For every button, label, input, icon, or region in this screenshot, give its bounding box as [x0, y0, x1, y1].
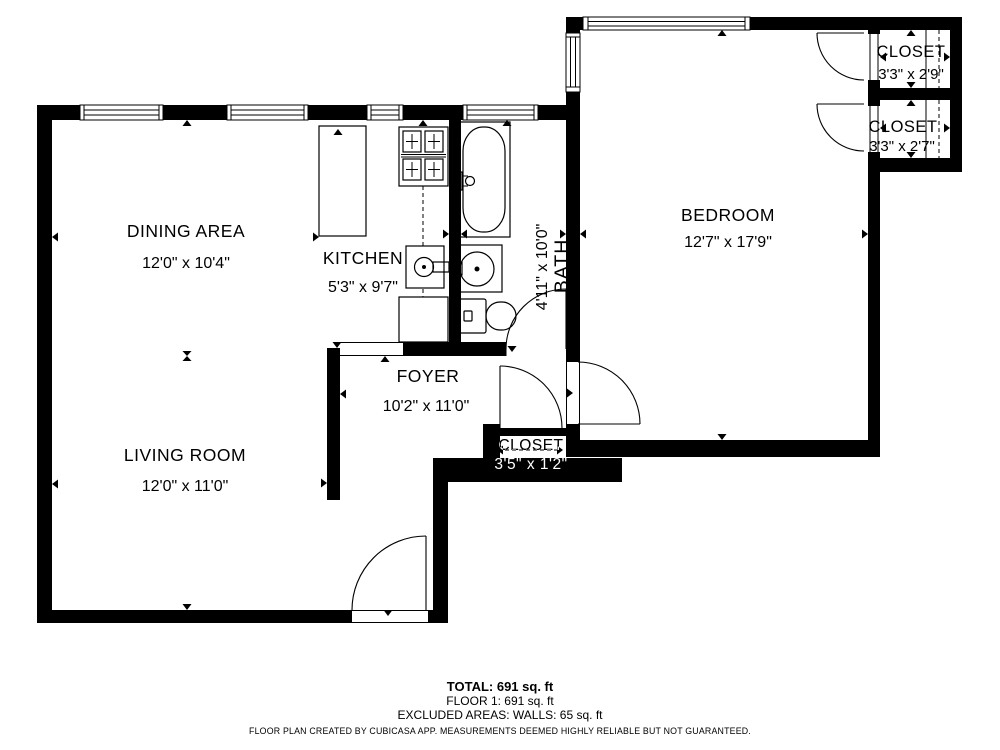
- toilet: [459, 299, 516, 333]
- fixtures: [319, 30, 939, 450]
- stove: [399, 127, 448, 186]
- closet-bottom-dims: 3'3" x 2'7": [869, 138, 935, 155]
- kitchen-dims: 5'3" x 9'7": [328, 279, 398, 296]
- bedroom-label: BEDROOM: [681, 205, 775, 225]
- window: [80, 105, 163, 120]
- foyer-closet-door: [500, 366, 562, 428]
- closet-top-label: CLOSET: [876, 43, 945, 61]
- floorplan-page: DINING AREA 12'0" x 10'4" KITCHEN 5'3" x…: [0, 0, 1000, 750]
- bedroom-door: [578, 362, 640, 424]
- kitchen-label: KITCHEN: [323, 248, 403, 268]
- bath-sink: [455, 245, 502, 292]
- living-room-dims: 12'0" x 11'0": [142, 478, 229, 495]
- foyer-closet-label: CLOSET: [498, 437, 563, 454]
- dining-area-label: DINING AREA: [127, 221, 245, 241]
- bedroom-dims: 12'7" x 17'9": [684, 234, 772, 251]
- total-area-text: TOTAL: 691 sq. ft: [447, 679, 554, 694]
- entry-door: [352, 536, 426, 610]
- closet-bottom-label: CLOSET: [868, 118, 937, 136]
- closet-top-door: [817, 33, 864, 80]
- bath-dims: 4'11" x 10'0": [534, 224, 551, 311]
- foyer-dims: 10'2" x 11'0": [383, 398, 470, 415]
- dining-area-dims: 12'0" x 10'4": [142, 255, 230, 272]
- dining-counter: [319, 126, 366, 236]
- floorplan-svg: DINING AREA 12'0" x 10'4" KITCHEN 5'3" x…: [0, 0, 1000, 750]
- passage-opening: [340, 342, 403, 356]
- closet-top-dims: 3'3" x 2'9": [878, 66, 944, 83]
- foyer-label: FOYER: [397, 366, 460, 386]
- bath-door-opening: [506, 342, 566, 356]
- kitchen-base-counter: [399, 297, 448, 342]
- bathtub: [456, 122, 510, 237]
- kitchen-sink: [406, 246, 449, 288]
- window: [463, 105, 538, 120]
- footer: TOTAL: 691 sq. ft FLOOR 1: 691 sq. ft EX…: [249, 679, 751, 736]
- door-openings: [340, 34, 880, 623]
- excluded-area-text: EXCLUDED AREAS: WALLS: 65 sq. ft: [398, 708, 604, 722]
- windows: [80, 17, 750, 120]
- living-room-label: LIVING ROOM: [124, 445, 246, 465]
- foyer-closet-dims: 3'5" x 1'2": [494, 456, 567, 473]
- disclaimer-text: FLOOR PLAN CREATED BY CUBICASA APP. MEAS…: [249, 726, 751, 736]
- closet-bottom-door: [817, 104, 864, 151]
- floor-area-text: FLOOR 1: 691 sq. ft: [446, 694, 554, 708]
- bath-label: BATH: [551, 239, 573, 294]
- window: [367, 105, 403, 120]
- window: [583, 17, 750, 30]
- window: [227, 105, 308, 120]
- window: [566, 33, 580, 92]
